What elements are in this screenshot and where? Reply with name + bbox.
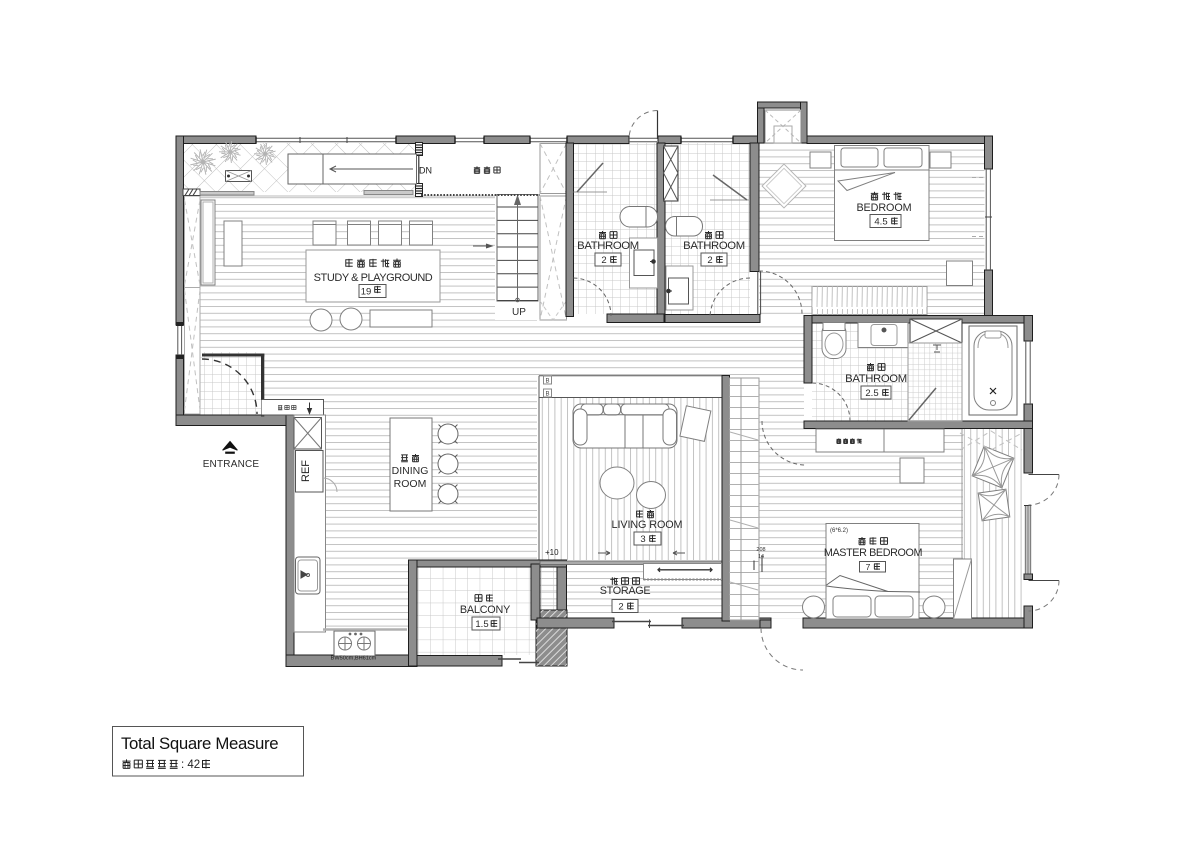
svg-text:DINING: DINING: [392, 465, 429, 477]
svg-text:2: 2: [707, 255, 712, 266]
svg-text:3: 3: [640, 534, 645, 545]
svg-text:LIVING ROOM: LIVING ROOM: [612, 519, 683, 531]
svg-text:4.5: 4.5: [874, 217, 887, 228]
svg-text:BATHROOM: BATHROOM: [845, 373, 907, 385]
svg-text:BW50cm,BH61cm: BW50cm,BH61cm: [331, 656, 377, 662]
svg-text:B: B: [545, 379, 549, 385]
svg-text:2.5: 2.5: [865, 388, 878, 399]
svg-text:STORAGE: STORAGE: [600, 585, 651, 597]
svg-text:UP: UP: [512, 307, 526, 318]
svg-text:+10: +10: [545, 548, 559, 557]
svg-text:(6*6.2): (6*6.2): [830, 528, 848, 534]
svg-text:19: 19: [361, 287, 372, 298]
svg-text:DN: DN: [419, 166, 432, 176]
svg-text:B: B: [545, 392, 549, 398]
svg-text:14: 14: [758, 554, 764, 560]
svg-text:208: 208: [756, 547, 765, 553]
svg-text:REF: REF: [300, 460, 312, 482]
svg-text:BALCONY: BALCONY: [460, 604, 510, 616]
svg-text:BATHROOM: BATHROOM: [683, 240, 745, 252]
svg-text:MASTER BEDROOM: MASTER BEDROOM: [824, 547, 923, 559]
svg-text:ROOM: ROOM: [394, 478, 427, 490]
svg-text:2: 2: [601, 255, 606, 266]
svg-text:BATHROOM: BATHROOM: [577, 240, 639, 252]
svg-text:Total Square Measure: Total Square Measure: [121, 734, 278, 753]
svg-text:BEDROOM: BEDROOM: [856, 202, 911, 214]
svg-text:STUDY & PLAYGROUND: STUDY & PLAYGROUND: [314, 272, 433, 284]
svg-text:2: 2: [618, 602, 623, 613]
svg-text:7: 7: [866, 562, 871, 572]
svg-text:ENTRANCE: ENTRANCE: [203, 459, 260, 470]
svg-text:1.5: 1.5: [475, 619, 488, 630]
svg-text:: 42: : 42: [181, 759, 200, 771]
